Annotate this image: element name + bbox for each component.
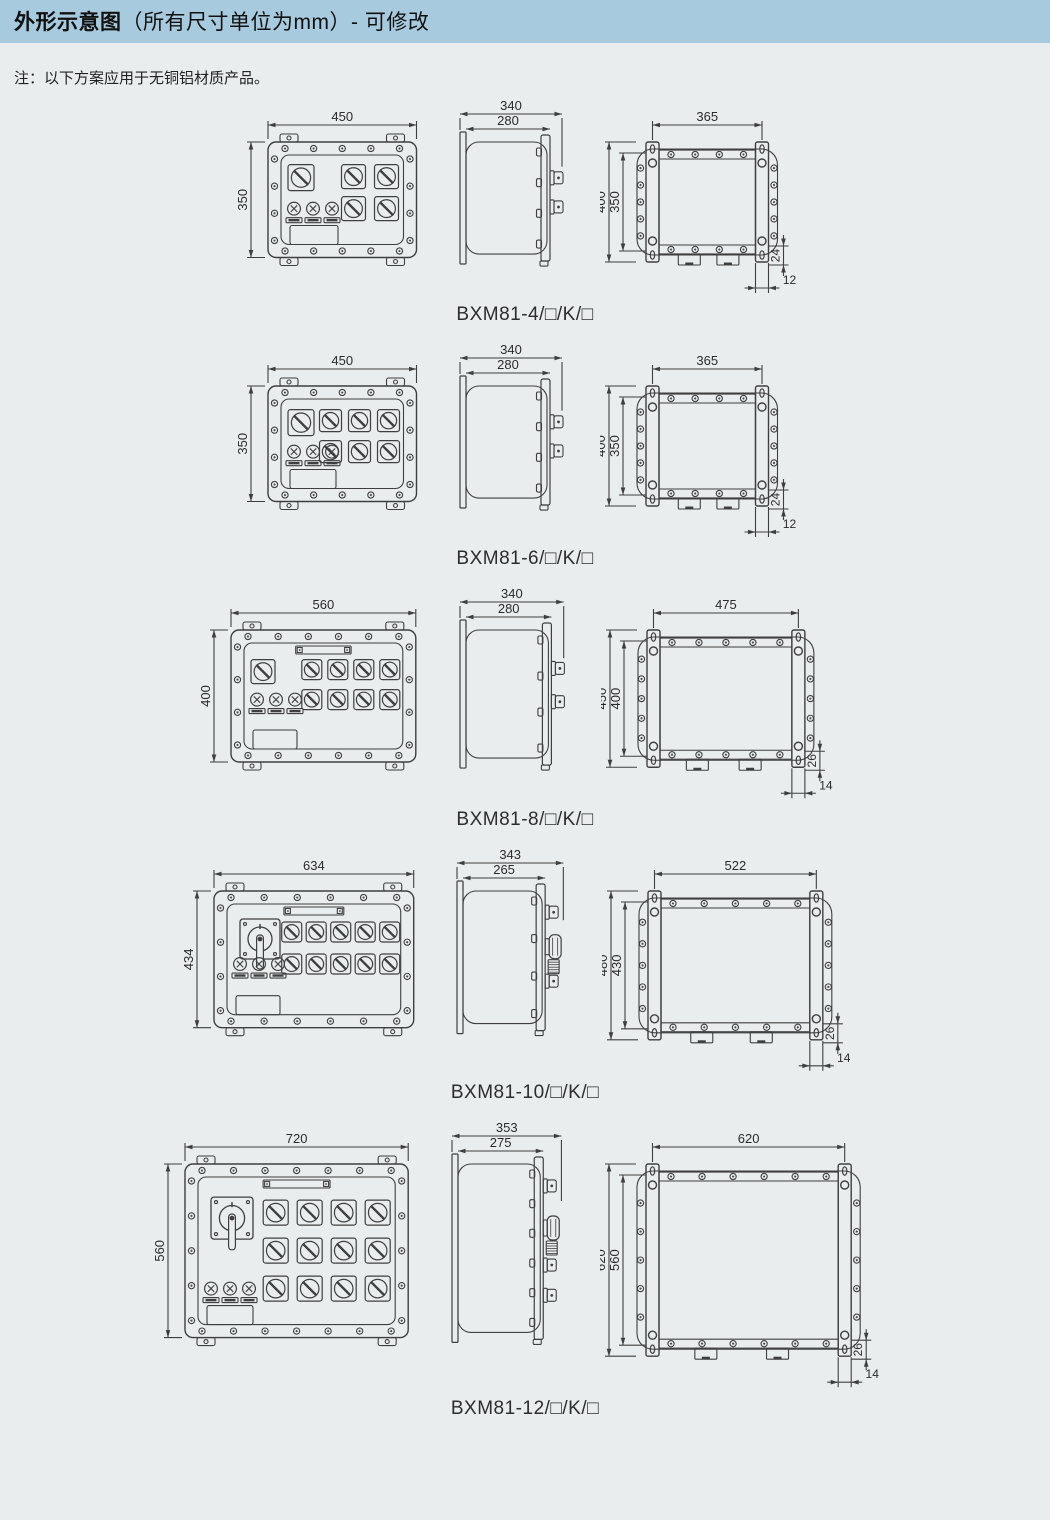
svg-text:14: 14: [865, 1367, 879, 1381]
back-view-svg: 6206205602614: [600, 1122, 899, 1396]
front-view-svg: 634434: [180, 849, 430, 1046]
back-view-drawing: 6206205602614: [600, 1122, 899, 1396]
drawing-rows: 450350 340280 3654003502412 BXM81-4/□/K/…: [0, 92, 1050, 1430]
svg-text:560: 560: [312, 597, 334, 612]
page-header: 外形示意图（所有尺寸单位为mm）- 可修改: [0, 0, 1050, 43]
model-label: BXM81-4/□/K/□: [456, 304, 593, 326]
model-row: 560400 340280 4754504002614 BXM81-8/□/K/…: [197, 588, 853, 831]
model-row: 450350 340280 3654003502412 BXM81-4/□/K/…: [234, 100, 817, 326]
side-view-drawing: 340280: [448, 344, 590, 522]
svg-text:400: 400: [608, 688, 623, 710]
back-view-svg: 3654003502412: [600, 100, 817, 302]
svg-text:12: 12: [783, 273, 797, 287]
svg-text:350: 350: [607, 435, 622, 457]
svg-text:26: 26: [805, 754, 819, 768]
side-view-svg: 340280: [448, 100, 590, 278]
svg-text:350: 350: [235, 433, 250, 455]
svg-text:560: 560: [607, 1249, 622, 1271]
svg-text:634: 634: [303, 858, 325, 873]
svg-text:340: 340: [500, 100, 522, 113]
model-row: 634434 343265 5224804302614 BXM81-10/□/K…: [180, 849, 871, 1104]
model-label: BXM81-8/□/K/□: [456, 809, 593, 831]
side-view-drawing: 343265: [445, 849, 591, 1048]
svg-text:450: 450: [331, 109, 353, 124]
side-view-svg: 340280: [448, 588, 592, 782]
svg-text:475: 475: [715, 597, 737, 612]
front-view-drawing: 560400: [197, 588, 432, 780]
page-title-suffix: （所有尺寸单位为mm）- 可修改: [122, 11, 430, 34]
svg-text:12: 12: [783, 517, 797, 531]
svg-text:280: 280: [497, 357, 519, 372]
back-view-drawing: 5224804302614: [602, 849, 871, 1080]
front-view-drawing: 450350: [234, 100, 433, 276]
svg-text:275: 275: [490, 1135, 512, 1150]
model-label: BXM81-10/□/K/□: [451, 1082, 599, 1104]
svg-text:14: 14: [819, 778, 833, 792]
front-view-svg: 450350: [234, 100, 433, 276]
svg-text:26: 26: [851, 1343, 865, 1357]
svg-text:522: 522: [724, 858, 746, 873]
svg-text:340: 340: [500, 344, 522, 357]
back-view-drawing: 3654003502412: [600, 100, 817, 302]
front-view-drawing: 634434: [180, 849, 430, 1046]
model-row: 720560 353275 6206205602614 BXM81-12/□/K…: [151, 1122, 899, 1420]
side-view-drawing: 353275: [440, 1122, 589, 1356]
svg-text:14: 14: [837, 1051, 851, 1065]
svg-text:434: 434: [181, 949, 196, 971]
side-view-svg: 343265: [445, 849, 591, 1048]
front-view-svg: 720560: [151, 1122, 424, 1356]
back-view-svg: 4754504002614: [601, 588, 853, 807]
back-view-drawing: 4754504002614: [601, 588, 853, 807]
svg-text:720: 720: [286, 1131, 308, 1146]
back-view-drawing: 3654003502412: [600, 344, 817, 546]
side-view-svg: 340280: [448, 344, 590, 522]
model-row: 450350 340280 3654003502412 BXM81-6/□/K/…: [234, 344, 817, 570]
svg-text:430: 430: [609, 955, 624, 977]
back-view-svg: 3654003502412: [600, 344, 817, 546]
svg-text:265: 265: [494, 862, 516, 877]
front-view-svg: 560400: [197, 588, 432, 780]
svg-text:353: 353: [496, 1122, 518, 1135]
svg-text:343: 343: [500, 849, 522, 862]
svg-text:280: 280: [497, 113, 519, 128]
front-view-drawing: 450350: [234, 344, 433, 520]
side-view-drawing: 340280: [448, 100, 590, 278]
svg-text:24: 24: [769, 249, 783, 263]
svg-text:350: 350: [235, 189, 250, 211]
note-text: 注：以下方案应用于无铜铝材质产品。: [0, 43, 1050, 92]
svg-text:26: 26: [822, 1027, 836, 1041]
page-title: 外形示意图: [14, 11, 122, 34]
svg-text:280: 280: [497, 601, 519, 616]
svg-text:450: 450: [331, 353, 353, 368]
svg-text:620: 620: [737, 1131, 759, 1146]
front-view-drawing: 720560: [151, 1122, 424, 1356]
svg-text:365: 365: [696, 353, 718, 368]
model-label: BXM81-6/□/K/□: [456, 548, 593, 570]
back-view-svg: 5224804302614: [602, 849, 871, 1080]
model-label: BXM81-12/□/K/□: [451, 1398, 599, 1420]
front-view-svg: 450350: [234, 344, 433, 520]
svg-text:400: 400: [198, 685, 213, 707]
svg-text:24: 24: [769, 493, 783, 507]
svg-text:365: 365: [696, 109, 718, 124]
svg-text:340: 340: [501, 588, 523, 601]
svg-text:560: 560: [152, 1240, 167, 1262]
side-view-svg: 353275: [440, 1122, 589, 1356]
side-view-drawing: 340280: [448, 588, 592, 782]
svg-text:350: 350: [607, 191, 622, 213]
